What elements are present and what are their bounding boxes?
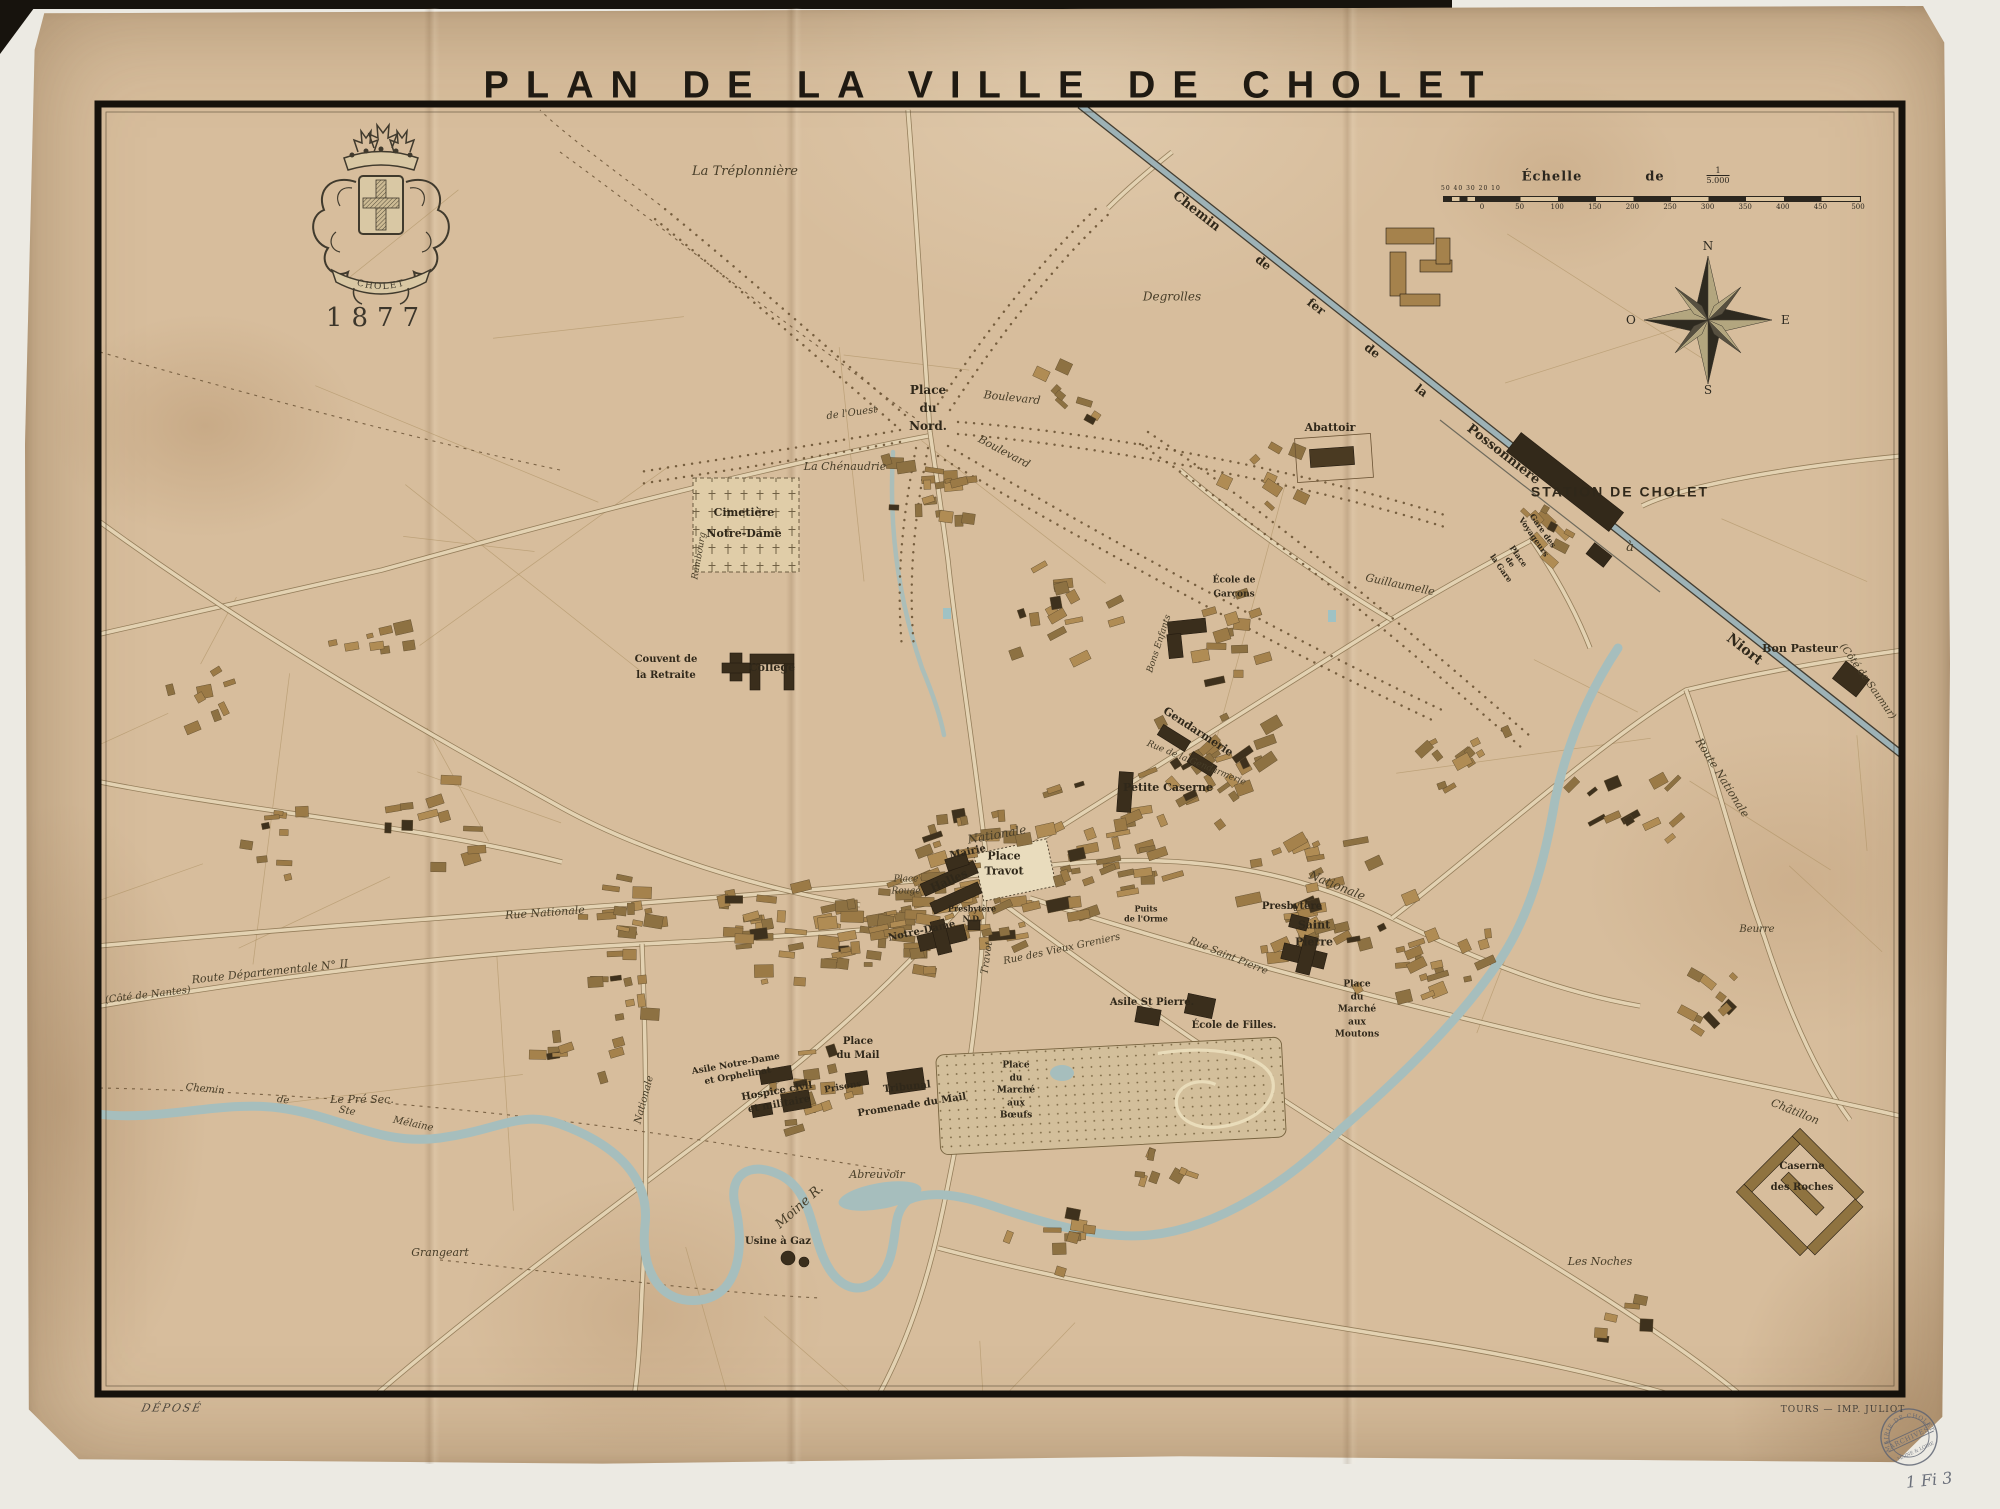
building <box>761 979 768 985</box>
scale-fraction-numerator: 1 <box>1715 166 1720 175</box>
parcel-line <box>980 1341 995 1509</box>
label-petite-caserne: Petite Caserne <box>1123 781 1213 795</box>
building <box>1202 606 1217 616</box>
compass-n: N <box>1703 239 1714 253</box>
building <box>725 896 743 904</box>
building <box>1729 972 1738 981</box>
scale-tick: 50 <box>1515 203 1524 211</box>
building <box>379 625 393 635</box>
building <box>1624 1303 1639 1309</box>
scale-fraction: 1 5.000 <box>1707 167 1730 185</box>
building <box>385 823 392 834</box>
scale-tick-labels: 050100150200250300350400450500 <box>1443 203 1863 215</box>
building <box>851 941 861 954</box>
label-abattoir: Abattoir <box>1305 421 1356 435</box>
building <box>284 873 292 881</box>
building <box>1068 847 1086 862</box>
building <box>257 856 268 863</box>
building <box>889 505 899 511</box>
building <box>609 1047 625 1059</box>
building <box>645 908 653 914</box>
parcel-line <box>239 877 390 948</box>
building <box>1114 818 1128 832</box>
tree-row-dots <box>938 205 1100 404</box>
coat-of-arms: CHOLET <box>313 125 449 304</box>
building <box>1260 715 1283 735</box>
building <box>1254 734 1277 750</box>
building <box>1250 454 1261 464</box>
country-lane <box>560 152 918 420</box>
parcel-line <box>1690 781 1831 870</box>
label-college: Collège <box>749 661 795 675</box>
building <box>798 1050 816 1056</box>
building <box>924 480 931 490</box>
building <box>1149 1171 1161 1184</box>
banner-text: CHOLET <box>356 278 407 292</box>
building <box>223 679 236 687</box>
building <box>1031 561 1048 574</box>
building <box>1118 869 1135 878</box>
building <box>1065 617 1083 625</box>
map-frame <box>98 104 1902 1394</box>
building <box>1664 775 1681 792</box>
building <box>1047 626 1066 641</box>
building <box>623 949 637 960</box>
building <box>1250 858 1262 868</box>
parcel-line <box>1789 866 1882 952</box>
building <box>1604 811 1622 824</box>
building <box>614 906 627 916</box>
building <box>402 640 415 651</box>
building <box>344 642 359 652</box>
scale-tick: 300 <box>1701 203 1714 211</box>
tree-row-dots <box>950 211 1112 410</box>
building <box>1464 976 1472 983</box>
building <box>1272 847 1282 855</box>
parcel-line <box>497 952 514 1211</box>
label-asile-st-pierre: Asile St Pierre. <box>1110 997 1194 1010</box>
road <box>1005 540 1532 862</box>
building <box>1587 787 1598 797</box>
building <box>933 841 941 848</box>
scanned-map-page: PLAN DE LA VILLE DE CHOLET <box>0 0 2000 1509</box>
building <box>1035 822 1056 838</box>
building <box>817 916 837 930</box>
label-puits-de-lorme: Puits de l'Orme <box>1124 904 1168 925</box>
building <box>1231 645 1248 653</box>
crown-fleuron <box>390 131 414 152</box>
parcel-line <box>1857 735 1867 851</box>
building <box>1207 643 1227 650</box>
building <box>785 1119 797 1126</box>
scale-bar <box>1443 196 1861 202</box>
building <box>1071 868 1080 874</box>
pond <box>1328 610 1336 622</box>
building <box>788 942 804 951</box>
label-cimetiere-notre-dame: Cimetière Notre-Dame <box>706 503 781 545</box>
building <box>1162 870 1184 881</box>
building <box>1135 1171 1145 1177</box>
label-presbytere-nd: Presbytère N.D. <box>948 904 996 925</box>
building <box>1715 991 1726 1002</box>
label-bon-pasteur: Bon Pasteur <box>1762 642 1838 656</box>
building <box>441 775 462 785</box>
building <box>369 641 384 651</box>
building <box>999 927 1010 937</box>
road <box>938 1248 1682 1398</box>
building <box>1604 775 1622 791</box>
building <box>638 975 647 984</box>
gasometer <box>781 1251 795 1265</box>
building <box>1677 1005 1698 1022</box>
building <box>1216 473 1233 490</box>
building <box>1264 501 1274 511</box>
scale-tick: 150 <box>1588 203 1601 211</box>
building <box>735 934 754 944</box>
building <box>210 666 222 677</box>
building <box>1018 922 1025 928</box>
label-la-chenaudrie: La Chénaudrie <box>804 460 886 474</box>
building <box>393 620 413 636</box>
building <box>1157 814 1168 827</box>
building <box>1017 608 1026 618</box>
couvent-retraite-wing <box>722 663 750 673</box>
building <box>1432 750 1443 762</box>
building <box>1074 781 1084 788</box>
parcel-line <box>493 317 684 339</box>
tree-row-dots <box>958 422 1448 516</box>
mantling-right <box>398 180 449 288</box>
building <box>279 829 288 835</box>
building <box>633 887 652 899</box>
building <box>1204 676 1225 687</box>
ecole-garcons-wing <box>1167 633 1183 658</box>
building <box>558 1042 574 1054</box>
building <box>1476 749 1485 758</box>
building <box>864 962 872 966</box>
scale-tick: 500 <box>1851 203 1864 211</box>
building <box>240 840 253 850</box>
building <box>1055 359 1073 376</box>
building <box>1069 650 1091 667</box>
building <box>925 467 944 474</box>
label-saint-pierre: Saint Pierre <box>1295 918 1333 951</box>
scale-word-echelle: Échelle <box>1522 170 1583 185</box>
building <box>754 964 773 977</box>
building <box>1604 1313 1618 1323</box>
building <box>1191 649 1210 663</box>
building <box>1501 725 1512 738</box>
scale-fraction-denominator: 5.000 <box>1707 175 1730 185</box>
building <box>1293 489 1310 504</box>
building <box>1084 827 1097 840</box>
gasometer <box>799 1257 809 1267</box>
building <box>1484 928 1491 938</box>
building <box>1254 652 1272 665</box>
building <box>1268 442 1282 454</box>
label-ste-w: Ste <box>338 1104 357 1119</box>
building <box>1112 837 1121 850</box>
building <box>779 951 795 959</box>
tree-row-dots <box>938 456 1432 720</box>
printer-imprint: TOURS — IMP. JULIOT <box>1781 1405 1905 1415</box>
shield-cross-horizontal <box>363 198 399 208</box>
parcel-line <box>420 466 670 645</box>
building <box>1029 612 1040 626</box>
building <box>1377 923 1386 932</box>
parcel-line <box>764 1316 976 1502</box>
building <box>936 814 948 825</box>
building <box>1050 596 1062 610</box>
compass-s: S <box>1704 383 1712 397</box>
building <box>276 860 292 866</box>
building <box>625 999 635 1007</box>
building <box>1076 397 1093 408</box>
building <box>1669 812 1685 827</box>
building <box>552 1030 561 1043</box>
building <box>463 826 482 832</box>
factory-complex-ne <box>1386 228 1452 306</box>
country-lane <box>100 352 560 470</box>
building <box>643 914 663 929</box>
label-station-de-cholet: STATION DE CHOLET <box>1531 483 1709 501</box>
building <box>211 709 222 722</box>
road <box>1108 152 1172 208</box>
building <box>1703 1011 1720 1029</box>
label-place-rouge: Place Rougé <box>891 874 920 897</box>
tree-row-dots <box>1140 444 1522 748</box>
tree-row-dots <box>650 215 895 425</box>
building <box>1068 896 1081 908</box>
building <box>1213 628 1231 644</box>
label-abreuvoir: Abreuvoir <box>849 1168 904 1182</box>
building <box>1235 892 1262 907</box>
building <box>437 810 450 823</box>
building <box>1003 1230 1014 1243</box>
scale-tick: 400 <box>1776 203 1789 211</box>
parcel-line <box>844 355 970 370</box>
building <box>602 885 620 892</box>
label-ecole-de-garcons: École de Garçons <box>1213 575 1256 602</box>
building <box>529 1050 546 1060</box>
station-annex <box>1586 543 1612 568</box>
building <box>184 721 201 735</box>
label-place-travot: Place Travot <box>984 849 1023 880</box>
scale-word-de: de <box>1645 170 1664 185</box>
building <box>612 1037 625 1048</box>
scale-tick: 350 <box>1739 203 1752 211</box>
building <box>417 809 438 821</box>
building <box>402 820 413 831</box>
country-lane <box>440 1260 820 1298</box>
building <box>295 806 308 817</box>
building <box>431 862 446 872</box>
label-caserne-des-roches: Caserne des Roches <box>1771 1156 1834 1198</box>
tree-row-dots <box>958 434 1448 528</box>
building <box>847 899 856 910</box>
building <box>1343 836 1369 846</box>
tree-row-dots <box>660 205 905 415</box>
building <box>597 912 616 920</box>
parcel-line <box>892 1323 1075 1509</box>
building <box>1640 1319 1654 1332</box>
label-usine-a-gaz: Usine à Gaz <box>745 1236 811 1249</box>
label-la-treplonniere: La Tréplonnière <box>692 164 798 180</box>
label-couvent-de-la-retraite: Couvent de la Retraite <box>635 652 698 684</box>
building <box>264 815 279 821</box>
label-rail-a: à <box>1626 540 1634 556</box>
building <box>794 977 806 986</box>
building <box>817 935 840 950</box>
building <box>1234 670 1244 678</box>
label-les-noches: Les Noches <box>1568 1255 1633 1269</box>
building <box>1396 946 1405 953</box>
building <box>610 975 622 981</box>
parcel-line <box>1505 320 1705 383</box>
building <box>1138 767 1157 778</box>
building <box>915 504 922 517</box>
building <box>1395 989 1413 1004</box>
building <box>1253 751 1277 772</box>
building <box>1365 855 1384 871</box>
building <box>960 816 968 825</box>
crown-fleuron <box>369 125 397 148</box>
building <box>1052 1243 1066 1255</box>
scale-bar-major <box>1483 197 1859 201</box>
building <box>939 510 954 523</box>
building <box>1083 1225 1096 1235</box>
pond <box>943 608 951 619</box>
label-place-du-mail: Place du Mail <box>837 1035 880 1063</box>
building <box>1214 819 1226 831</box>
label-place-marche-moutons: Place du Marché aux Moutons <box>1335 979 1379 1042</box>
building <box>385 804 402 813</box>
building <box>878 888 890 895</box>
country-lane <box>540 110 660 205</box>
building <box>552 1052 567 1057</box>
building <box>637 994 646 1008</box>
building <box>1478 939 1490 950</box>
building <box>1043 1228 1061 1233</box>
building <box>998 810 1005 822</box>
building <box>1249 608 1262 619</box>
building <box>1642 817 1661 831</box>
scale-tick: 100 <box>1551 203 1564 211</box>
building <box>166 684 176 696</box>
parcel-line <box>315 386 598 503</box>
building <box>1288 443 1306 460</box>
garden-pond <box>1050 1065 1074 1081</box>
compass-o: O <box>1626 313 1636 327</box>
road <box>372 890 975 1398</box>
building <box>640 1007 659 1020</box>
label-degrolles: Degrolles <box>1143 290 1201 305</box>
label-place-marche-boeufs: Place du Marché aux Bœufs <box>997 1060 1035 1123</box>
building <box>961 512 975 524</box>
building <box>1588 814 1606 826</box>
building <box>261 822 270 830</box>
crown-band <box>344 152 418 171</box>
building <box>627 903 634 915</box>
building <box>1106 595 1124 609</box>
building <box>1065 1207 1081 1221</box>
promenade-du-mail-garden <box>936 1037 1287 1155</box>
parcel-line <box>1721 519 1867 582</box>
building <box>1419 973 1428 981</box>
building <box>1401 889 1420 906</box>
abattoir-building <box>1309 446 1354 467</box>
parcel-line <box>1507 234 1703 359</box>
building <box>1470 737 1480 747</box>
road <box>100 782 562 862</box>
scale-bar-minor <box>1444 197 1483 201</box>
building <box>777 910 786 922</box>
scale-tick: 0 <box>1480 203 1484 211</box>
building <box>400 802 413 810</box>
label-beurre: Beurre <box>1739 924 1774 937</box>
building <box>1312 841 1320 848</box>
building <box>615 1013 624 1020</box>
building <box>597 1071 608 1084</box>
label-presbytere-st-pierre: Presbytère <box>1262 901 1322 914</box>
compass-rose: N S E O <box>1626 239 1790 397</box>
road <box>930 432 988 874</box>
road-casing <box>1392 650 1904 918</box>
building <box>866 950 881 960</box>
building <box>1649 772 1668 789</box>
depose-mark: DÉPOSÉ <box>140 1402 204 1415</box>
building <box>632 920 643 927</box>
building <box>841 910 864 923</box>
building <box>1260 945 1268 953</box>
building <box>1033 366 1051 382</box>
map-year: 1877 <box>326 303 428 333</box>
building <box>328 639 337 646</box>
building <box>1594 1328 1607 1339</box>
building <box>588 976 604 987</box>
building <box>756 895 776 904</box>
label-grangeart: Grangeart <box>411 1246 468 1260</box>
building <box>1690 1024 1704 1036</box>
road <box>1392 650 1904 918</box>
building <box>736 943 752 949</box>
building <box>426 794 445 809</box>
label-ecole-de-filles: École de Filles. <box>1192 1020 1277 1033</box>
banner-text-path: CHOLET <box>356 278 407 292</box>
building <box>1082 876 1094 886</box>
building <box>827 1064 837 1074</box>
parcel-line <box>0 713 168 791</box>
building <box>821 959 837 969</box>
scale-minor-ticks: 50 40 30 20 10 <box>1441 185 1501 192</box>
abreuvoir-basin <box>836 1176 923 1216</box>
building <box>1108 616 1125 627</box>
compass-e: E <box>1781 313 1790 327</box>
building <box>923 966 936 974</box>
label-de-w: de <box>276 1094 290 1108</box>
building <box>1665 833 1676 843</box>
building <box>624 977 633 986</box>
building <box>616 874 632 882</box>
label-place-du-nord: Place du Nord. <box>909 381 947 435</box>
building <box>467 845 486 854</box>
scale-tick: 250 <box>1663 203 1676 211</box>
building <box>1009 647 1024 661</box>
scale-tick: 450 <box>1814 203 1827 211</box>
parcel-line <box>405 485 647 676</box>
scale-tick: 200 <box>1626 203 1639 211</box>
building <box>366 633 373 639</box>
